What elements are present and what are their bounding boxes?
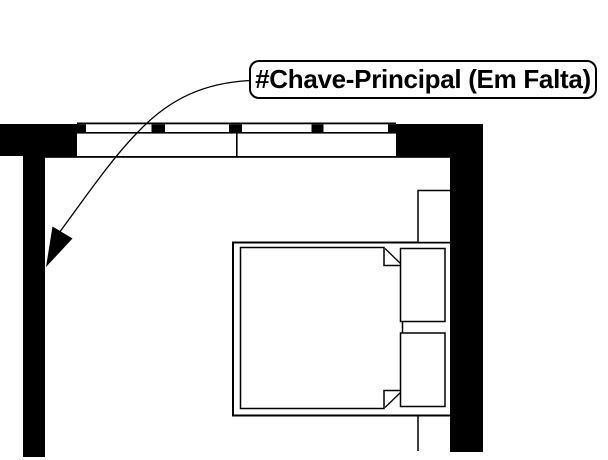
wall-left xyxy=(23,156,45,457)
wall-top-right xyxy=(396,124,483,157)
window-outer-frame-line xyxy=(77,123,396,125)
nightstand-top xyxy=(418,191,451,243)
callout-label[interactable]: #Chave-Principal (Em Falta) xyxy=(249,60,597,99)
wall-right xyxy=(450,157,483,452)
window-mullion xyxy=(77,124,86,132)
window-mullion xyxy=(388,124,396,132)
pillow-bottom xyxy=(401,333,446,407)
window-mullion xyxy=(152,124,166,132)
window-mullion xyxy=(229,124,242,132)
bed-sheet xyxy=(241,248,403,409)
leader-arrowhead-icon xyxy=(46,227,73,268)
window xyxy=(45,123,451,158)
window-sill-line xyxy=(45,156,451,158)
floor-plan-canvas: #Chave-Principal (Em Falta) xyxy=(0,0,608,460)
pillow-top xyxy=(401,249,446,322)
wall-top-left xyxy=(0,124,77,156)
bed xyxy=(233,243,451,416)
window-mullion xyxy=(312,124,324,132)
leader xyxy=(46,81,250,268)
window-center-divider xyxy=(236,132,238,158)
